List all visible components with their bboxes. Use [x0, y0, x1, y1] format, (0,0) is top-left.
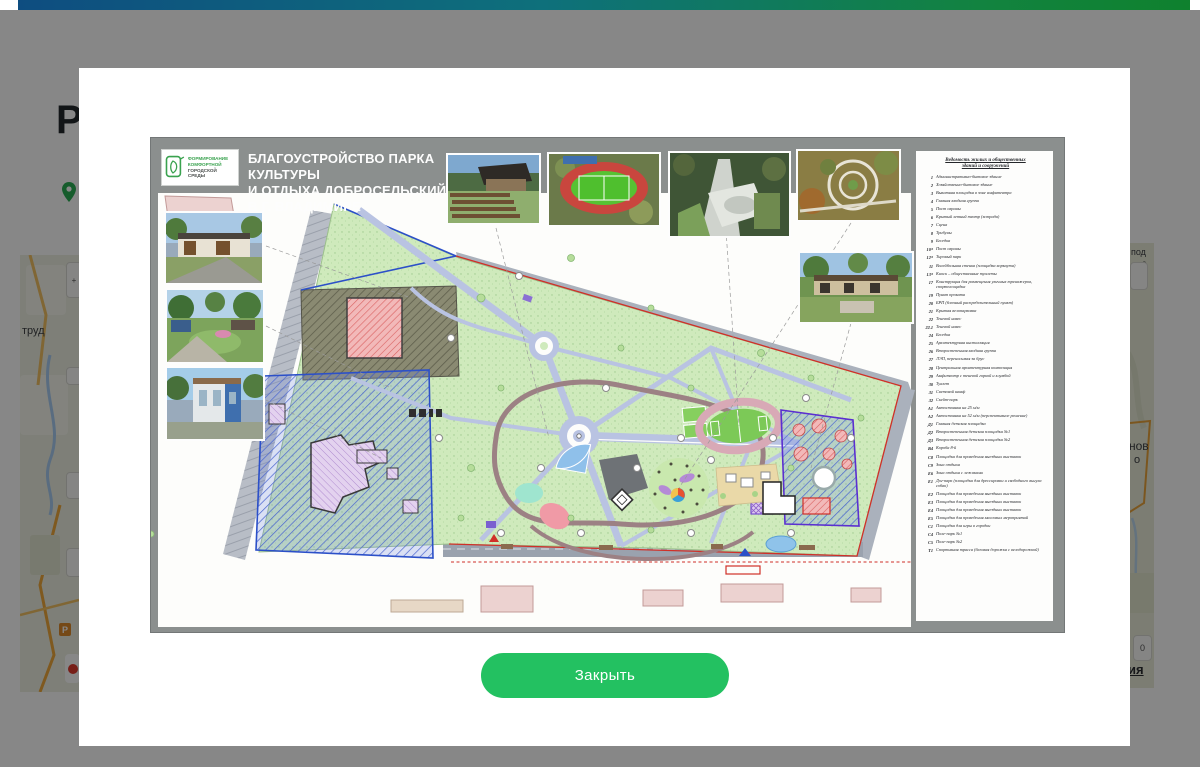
legend-item: 3Выкатная площадка в зоне амфитеатра: [923, 191, 1048, 196]
legend-item: 6Крытый летний театр (эстрада): [923, 215, 1048, 220]
legend-item: 1Административно-бытовое здание: [923, 175, 1048, 180]
brand-gradient-bar: [18, 0, 1190, 10]
legend-item: 20БРП (блочный распределительный пункт): [923, 301, 1048, 306]
poster-title-line1: БЛАГОУСТРОЙСТВО ПАРКА КУЛЬТУРЫ: [248, 151, 468, 183]
photo-pavilion: [798, 251, 914, 324]
legend-title-line2: зданий и сооружений: [923, 164, 1048, 170]
logo-text-line: ГОРОДСКОЙ СРЕДЫ: [188, 168, 235, 179]
legend-item: А2Автостоянка на 52 м/м (перспективное р…: [923, 414, 1048, 419]
legend-item: С8Площадка для проведения выездных выста…: [923, 455, 1048, 460]
legend-item: 29Амфитеатр с теневой горкой и клумбой: [923, 374, 1048, 379]
legend-item: 22.1Теневой навес: [923, 325, 1048, 330]
legend-item: Д1Главная детская площадка: [923, 422, 1048, 427]
park-plan-poster: ФОРМИРОВАНИЕ КОМФОРТНОЙ ГОРОДСКОЙ СРЕДЫ …: [150, 137, 1065, 633]
legend-item: 5Пост охраны: [923, 207, 1048, 212]
legend-item: 24Беседка: [923, 333, 1048, 338]
legend-item: Т1Спортивная трасса (беговая дорожка с в…: [923, 548, 1048, 553]
legend-item: 9Беседка: [923, 239, 1048, 244]
legend-item: 7Сцена: [923, 223, 1048, 228]
legend-item: Е6Зона отдыха с лежаками: [923, 471, 1048, 476]
close-button[interactable]: Закрыть: [481, 653, 729, 698]
legend-item: 2Хозяйственно-бытовое здание: [923, 183, 1048, 188]
legend-item: 13*Киоск – общественные туалеты: [923, 272, 1048, 277]
legend-item: 11Волейбольная стенка (площадка воркаута…: [923, 264, 1048, 269]
legend-item: Е5Площадка для проведения массовых мероп…: [923, 516, 1048, 521]
legend-item: 12*Тировый парк: [923, 255, 1048, 260]
photo-stadium: [547, 152, 661, 227]
legend-item: Д3Второстепенная детская площадка №2: [923, 438, 1048, 443]
legend-item: 22Теневой навес: [923, 317, 1048, 322]
poster-title-line2: И ОТДЫХА ДОБРОСЕЛЬСКИЙ: [248, 183, 468, 199]
poster-title-line3: В Г. ВЛАДИМИРЕ: [248, 199, 468, 215]
legend-item: С4Поле-парк №1: [923, 532, 1048, 537]
legend-item: Е3Площадка для проведения выездных выста…: [923, 500, 1048, 505]
legend-item: 8Трибуны: [923, 231, 1048, 236]
fkgs-logo: ФОРМИРОВАНИЕ КОМФОРТНОЙ ГОРОДСКОЙ СРЕДЫ: [161, 149, 239, 186]
photo-cube-building: [165, 366, 265, 441]
legend-item: 4Главная входная группа: [923, 199, 1048, 204]
legend-item: С5Поле-парк №2: [923, 540, 1048, 545]
fkgs-logo-icon: [165, 155, 185, 181]
legend-item: А1Автостоянка на 25 м/м: [923, 406, 1048, 411]
photo-amphitheater: [446, 153, 541, 225]
legend-item: В4Короба 8-й: [923, 446, 1048, 451]
legend-item: С9Зона отдыха: [923, 463, 1048, 468]
legend-item: С1Площадка для игры в городки: [923, 524, 1048, 529]
legend-item: 26Второстепенная входная группа: [923, 349, 1048, 354]
legend-item: 10*Пост охраны: [923, 247, 1048, 252]
legend-item: Д2Второстепенная детская площадка №1: [923, 430, 1048, 435]
legend-item: 17Конструкция для размещения уличных тре…: [923, 280, 1048, 290]
logo-text-line: ФОРМИРОВАНИЕ: [188, 156, 235, 162]
legend-item: 27ЛЭП, переносимая за брус: [923, 357, 1048, 362]
legend-item: Е1Дог-парк (площадка для дрессировки и с…: [923, 479, 1048, 489]
scheme-preview-modal: ФОРМИРОВАНИЕ КОМФОРТНОЙ ГОРОДСКОЙ СРЕДЫ …: [79, 68, 1130, 746]
legend-item: 21Крытая велопарковка: [923, 309, 1048, 314]
legend-item: 32Скейт-парк: [923, 398, 1048, 403]
legend-items: 1Административно-бытовое здание2Хозяйств…: [923, 175, 1048, 554]
photo-entrance-building: [164, 211, 264, 285]
plan-legend: Ведомость жилых и общественных зданий и …: [916, 151, 1053, 621]
legend-item: 31Световой шкаф: [923, 390, 1048, 395]
photo-skatepark: [668, 151, 791, 238]
photo-garden-aerial: [796, 149, 901, 222]
legend-item: Е4Площадка для проведения выездных выста…: [923, 508, 1048, 513]
legend-item: 28Центральная архитектурная композиция: [923, 366, 1048, 371]
photo-garden-plaza: [165, 288, 265, 364]
top-header-strip: [0, 0, 1200, 10]
poster-title: БЛАГОУСТРОЙСТВО ПАРКА КУЛЬТУРЫ И ОТДЫХА …: [248, 151, 468, 215]
legend-item: 19Пункт проката: [923, 293, 1048, 298]
legend-item: 25Архитектурная инсталляция: [923, 341, 1048, 346]
legend-item: Е2Площадка для проведения выездных выста…: [923, 492, 1048, 497]
legend-item: 30Туалет: [923, 382, 1048, 387]
